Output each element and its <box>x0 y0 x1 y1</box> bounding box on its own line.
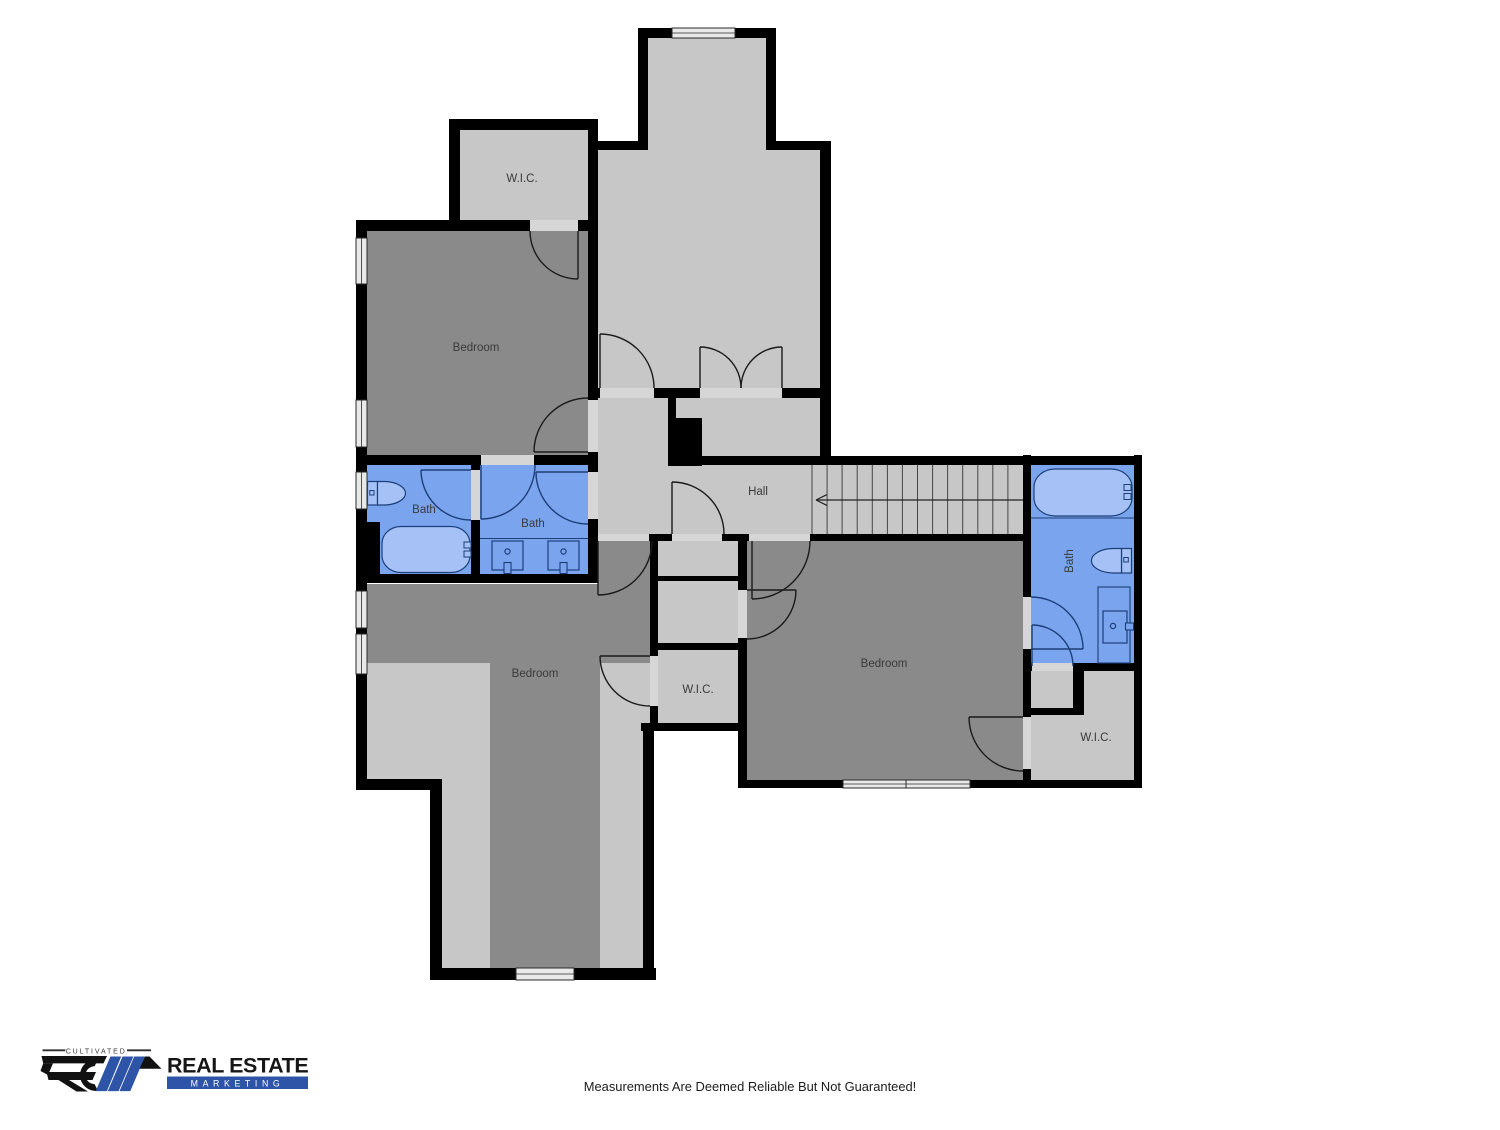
svg-text:CULTIVATED: CULTIVATED <box>66 1049 127 1056</box>
svg-text:Bedroom: Bedroom <box>453 342 500 354</box>
svg-text:Measurements Are Deemed Reliab: Measurements Are Deemed Reliable But Not… <box>584 1079 916 1094</box>
svg-text:Bedroom: Bedroom <box>512 668 559 680</box>
svg-text:MARKETING: MARKETING <box>191 1078 285 1088</box>
svg-text:W.I.C.: W.I.C. <box>1080 732 1111 744</box>
svg-text:W.I.C.: W.I.C. <box>682 684 713 696</box>
svg-text:Bedroom: Bedroom <box>861 658 908 670</box>
svg-text:Bath: Bath <box>521 518 545 530</box>
svg-text:Bath: Bath <box>1064 549 1076 573</box>
svg-text:Bath: Bath <box>412 504 436 516</box>
svg-text:Hall: Hall <box>748 486 768 498</box>
svg-text:REAL ESTATE: REAL ESTATE <box>167 1054 308 1078</box>
svg-text:W.I.C.: W.I.C. <box>506 173 537 185</box>
